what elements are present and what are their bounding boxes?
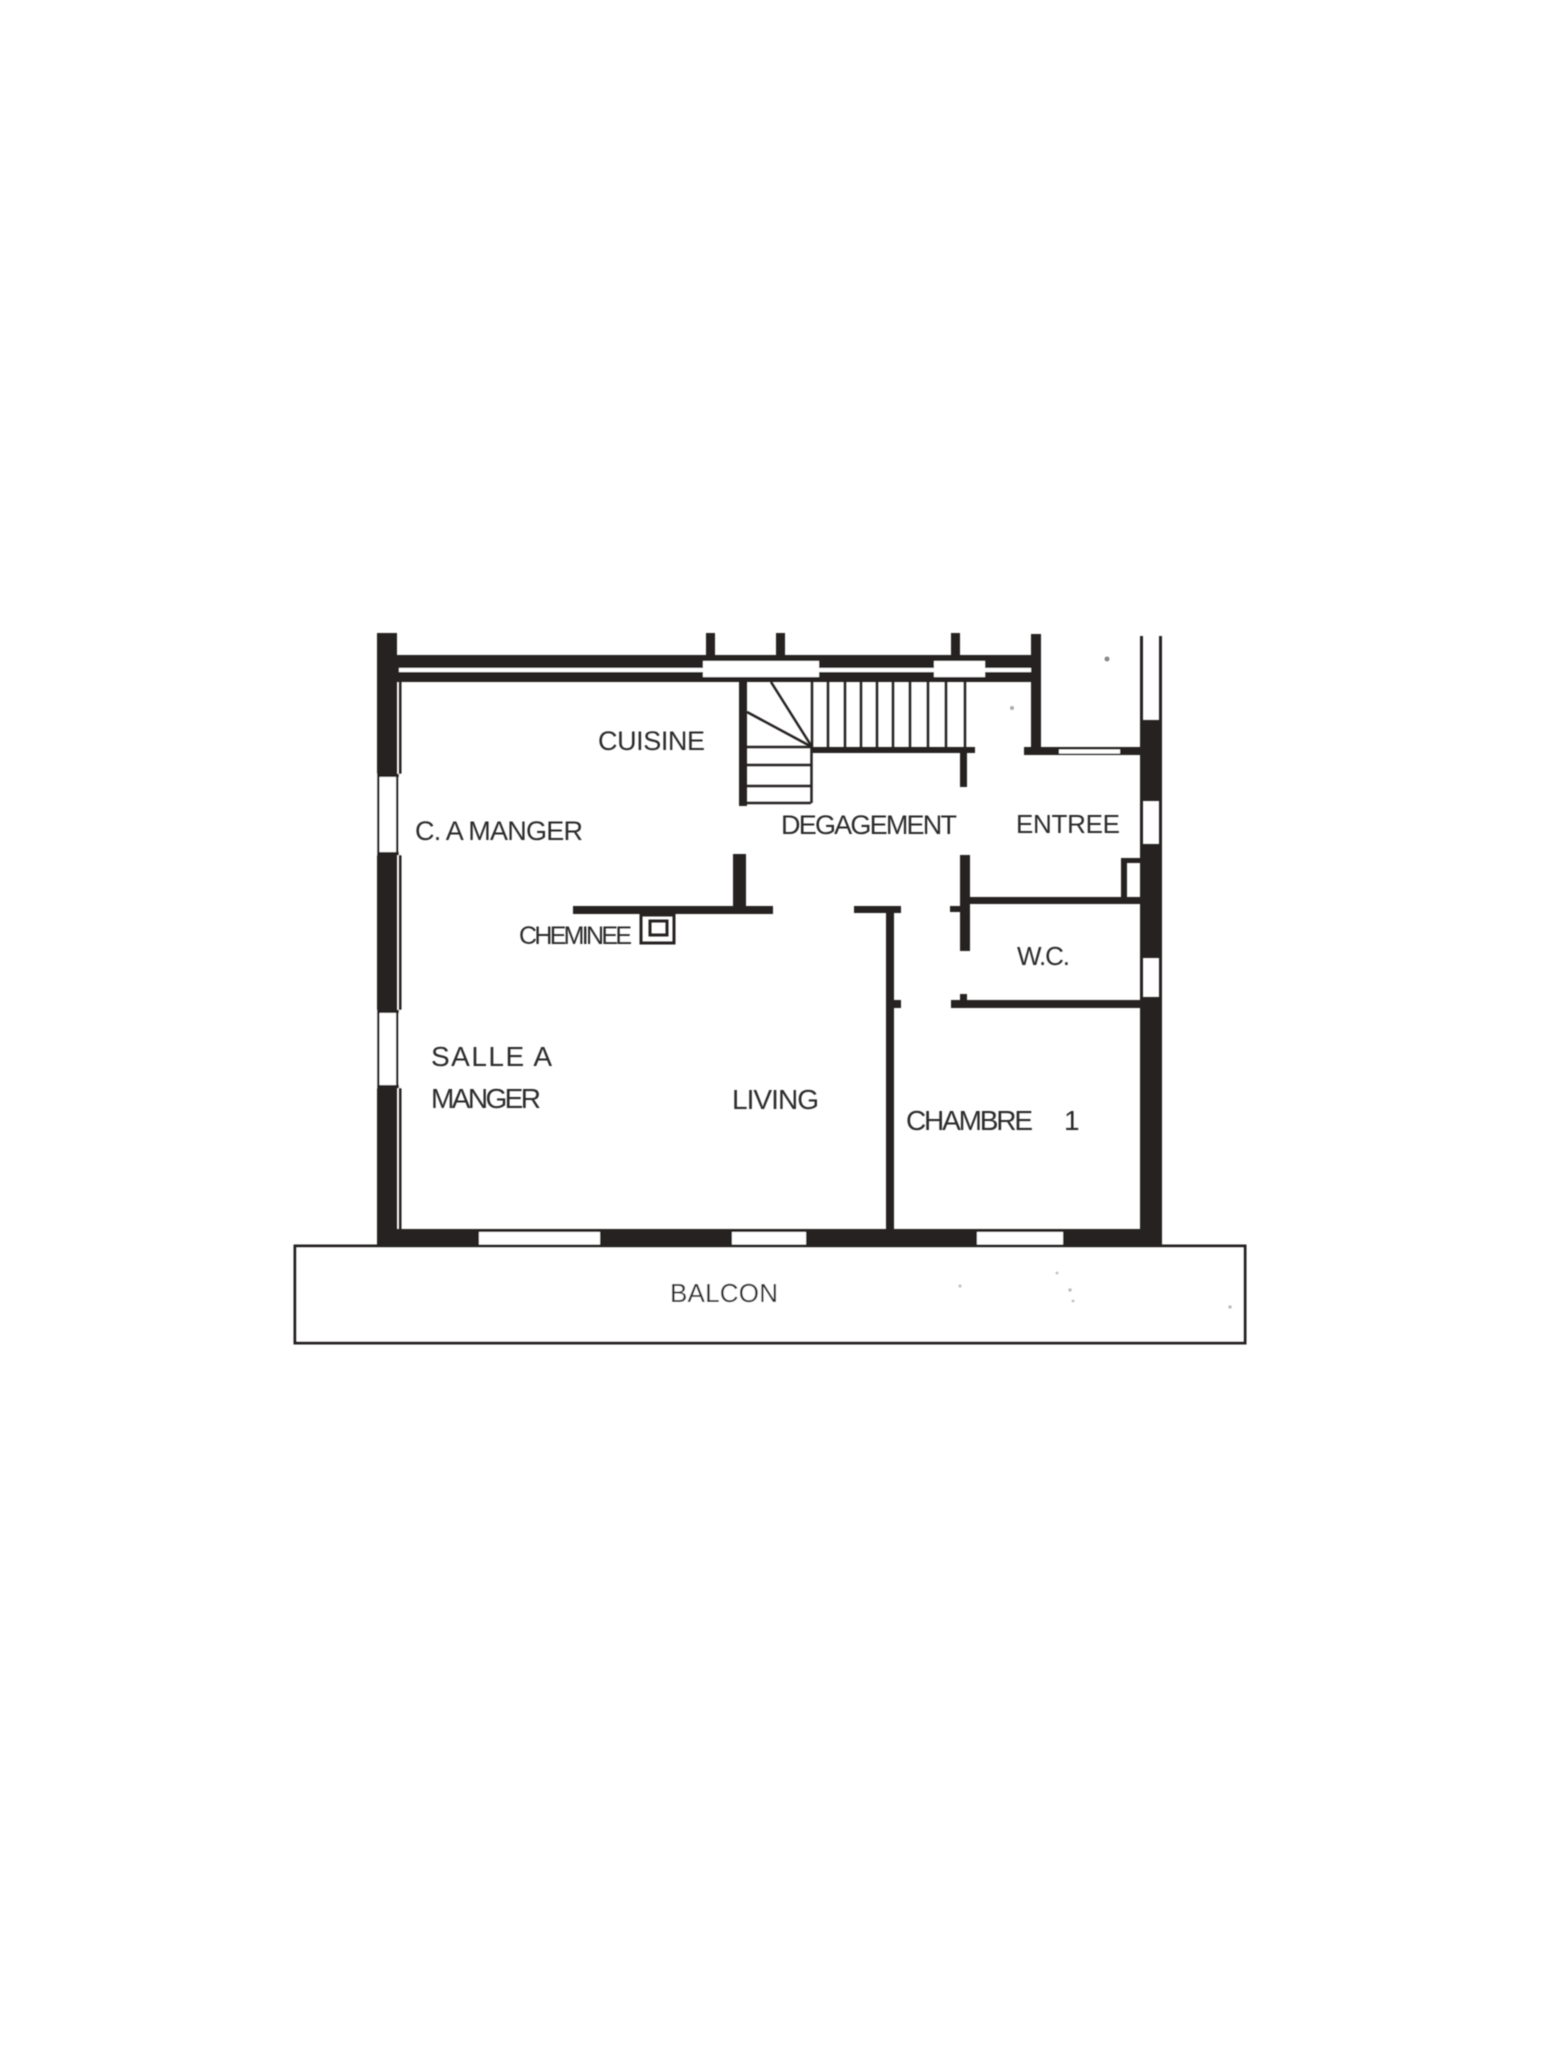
svg-text:ENTREE: ENTREE <box>1016 809 1120 839</box>
svg-text:DEGAGEMENT: DEGAGEMENT <box>781 810 957 840</box>
svg-text:MANGER: MANGER <box>431 1083 541 1114</box>
svg-text:LIVING: LIVING <box>732 1084 819 1115</box>
svg-text:BALCON: BALCON <box>670 1278 778 1308</box>
svg-text:CUISINE: CUISINE <box>598 726 705 756</box>
svg-text:C. A MANGER: C. A MANGER <box>415 816 583 846</box>
svg-text:CHEMINEE: CHEMINEE <box>519 922 632 950</box>
svg-text:W.C.: W.C. <box>1017 941 1070 971</box>
svg-text:1: 1 <box>1064 1105 1080 1136</box>
svg-text:SALLE A: SALLE A <box>431 1041 552 1072</box>
svg-text:CHAMBRE: CHAMBRE <box>906 1105 1033 1136</box>
